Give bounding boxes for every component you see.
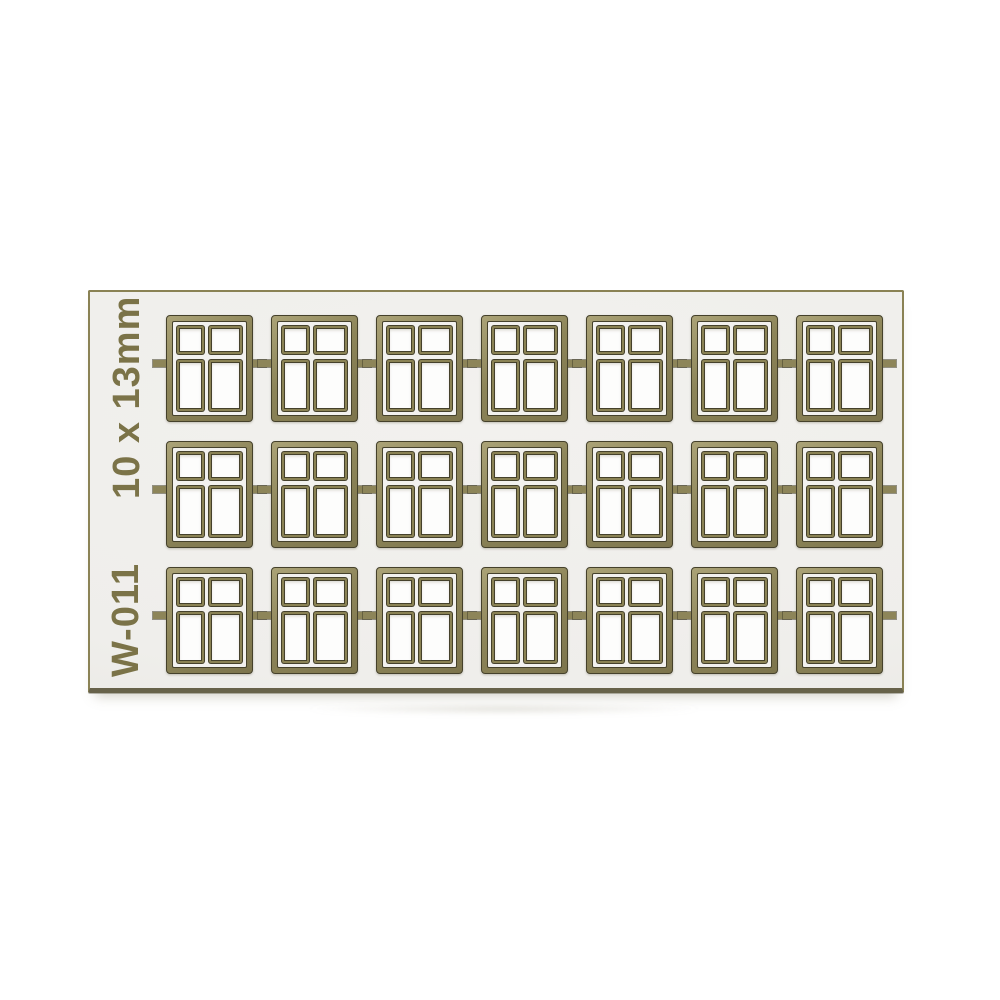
window-part xyxy=(376,315,463,422)
pane-bottom-left xyxy=(177,612,204,663)
pane-top-right xyxy=(839,452,872,480)
window-inner-frame xyxy=(487,447,562,542)
window-part xyxy=(691,315,778,422)
pane-top-right xyxy=(524,452,557,480)
window-part xyxy=(586,441,673,548)
pane-top-left xyxy=(807,326,834,354)
product-code-label: W-011 xyxy=(106,553,146,687)
window-part xyxy=(586,567,673,674)
window-part xyxy=(796,315,883,422)
pane-bottom-left xyxy=(387,612,414,663)
window-inner-frame xyxy=(277,447,352,542)
sprue-tab-right xyxy=(883,486,896,493)
window-inner-frame xyxy=(802,321,877,416)
window-inner-frame xyxy=(382,321,457,416)
pane-top-left xyxy=(492,452,519,480)
window-part xyxy=(376,567,463,674)
sprue-tab-left xyxy=(153,612,166,619)
window-inner-frame xyxy=(172,447,247,542)
pane-top-left xyxy=(282,326,309,354)
sprue-tab-left xyxy=(678,360,691,367)
pane-top-left xyxy=(177,452,204,480)
pane-top-left xyxy=(387,326,414,354)
size-label: 10 x 13mm xyxy=(107,301,147,499)
sprue-tab-left xyxy=(363,360,376,367)
pane-top-right xyxy=(314,326,347,354)
sprue-tab-right xyxy=(883,360,896,367)
window-part xyxy=(166,315,253,422)
window-part xyxy=(796,567,883,674)
pane-bottom-left xyxy=(597,360,624,411)
window-inner-frame xyxy=(592,573,667,668)
pane-top-right xyxy=(419,578,452,606)
sprue-tab-left xyxy=(573,486,586,493)
window-inner-frame xyxy=(697,447,772,542)
sprue-tab-left xyxy=(153,486,166,493)
window-part xyxy=(166,567,253,674)
sprue-tab-left xyxy=(258,360,271,367)
pane-bottom-right xyxy=(734,612,767,663)
pane-top-right xyxy=(419,326,452,354)
sprue-tab-right xyxy=(883,612,896,619)
window-part xyxy=(481,315,568,422)
pane-bottom-left xyxy=(702,486,729,537)
sprue-tab-left xyxy=(783,486,796,493)
pane-bottom-left xyxy=(387,360,414,411)
pane-bottom-right xyxy=(524,360,557,411)
pane-bottom-right xyxy=(524,612,557,663)
window-inner-frame xyxy=(592,321,667,416)
pane-top-right xyxy=(419,452,452,480)
pane-top-right xyxy=(314,452,347,480)
window-inner-frame xyxy=(487,321,562,416)
pane-bottom-right xyxy=(209,486,242,537)
sprue-tab-left xyxy=(468,486,481,493)
pane-bottom-right xyxy=(839,486,872,537)
pane-bottom-right xyxy=(314,486,347,537)
pane-top-left xyxy=(807,452,834,480)
pane-top-left xyxy=(177,578,204,606)
window-inner-frame xyxy=(382,573,457,668)
pane-bottom-right xyxy=(419,612,452,663)
window-inner-frame xyxy=(277,321,352,416)
pane-bottom-right xyxy=(419,360,452,411)
sprue-tab-left xyxy=(573,360,586,367)
pane-top-left xyxy=(492,326,519,354)
sprue-tab-left xyxy=(258,612,271,619)
pane-bottom-left xyxy=(282,612,309,663)
window-inner-frame xyxy=(802,447,877,542)
window-inner-frame xyxy=(697,321,772,416)
sprue-tab-left xyxy=(363,612,376,619)
pane-top-right xyxy=(524,326,557,354)
pane-bottom-right xyxy=(419,486,452,537)
pane-top-right xyxy=(209,452,242,480)
pane-top-right xyxy=(629,578,662,606)
pane-bottom-right xyxy=(629,612,662,663)
moulding-sheet: 10 x 13mm W-011 xyxy=(88,290,904,693)
pane-top-right xyxy=(629,326,662,354)
sprue-tab-left xyxy=(468,360,481,367)
pane-top-left xyxy=(387,452,414,480)
pane-top-right xyxy=(734,452,767,480)
pane-bottom-left xyxy=(702,360,729,411)
pane-top-right xyxy=(839,326,872,354)
window-part xyxy=(271,315,358,422)
window-part xyxy=(691,567,778,674)
pane-top-left xyxy=(807,578,834,606)
window-part xyxy=(166,441,253,548)
pane-bottom-left xyxy=(387,486,414,537)
pane-bottom-left xyxy=(492,612,519,663)
pane-bottom-right xyxy=(734,360,767,411)
pane-top-left xyxy=(702,452,729,480)
pane-bottom-right xyxy=(839,612,872,663)
pane-top-right xyxy=(209,578,242,606)
pane-bottom-left xyxy=(807,486,834,537)
pane-bottom-right xyxy=(209,360,242,411)
pane-bottom-right xyxy=(839,360,872,411)
pane-top-left xyxy=(597,578,624,606)
pane-top-right xyxy=(629,452,662,480)
sprue-tab-left xyxy=(783,360,796,367)
sprue-tab-left xyxy=(678,486,691,493)
window-part xyxy=(481,567,568,674)
pane-bottom-left xyxy=(702,612,729,663)
window-part xyxy=(271,567,358,674)
pane-bottom-right xyxy=(314,360,347,411)
pane-bottom-left xyxy=(177,360,204,411)
pane-bottom-right xyxy=(314,612,347,663)
sprue-tab-left xyxy=(468,612,481,619)
pane-bottom-left xyxy=(597,486,624,537)
sprue-tab-left xyxy=(678,612,691,619)
pane-bottom-right xyxy=(209,612,242,663)
window-part xyxy=(481,441,568,548)
pane-bottom-left xyxy=(282,486,309,537)
pane-top-left xyxy=(492,578,519,606)
window-grid xyxy=(166,315,883,674)
window-inner-frame xyxy=(172,573,247,668)
window-inner-frame xyxy=(172,321,247,416)
pane-bottom-left xyxy=(807,360,834,411)
pane-top-right xyxy=(734,326,767,354)
pane-bottom-left xyxy=(177,486,204,537)
pane-bottom-left xyxy=(597,612,624,663)
pane-bottom-left xyxy=(807,612,834,663)
sprue-tab-left xyxy=(783,612,796,619)
pane-bottom-left xyxy=(282,360,309,411)
pane-bottom-right xyxy=(629,486,662,537)
window-part xyxy=(796,441,883,548)
pane-top-left xyxy=(387,578,414,606)
pane-bottom-right xyxy=(524,486,557,537)
pane-top-right xyxy=(839,578,872,606)
pane-top-right xyxy=(209,326,242,354)
pane-bottom-right xyxy=(629,360,662,411)
window-part xyxy=(691,441,778,548)
pane-top-left xyxy=(282,578,309,606)
pane-top-left xyxy=(597,452,624,480)
sprue-tab-left xyxy=(363,486,376,493)
pane-top-left xyxy=(702,578,729,606)
pane-top-left xyxy=(702,326,729,354)
window-inner-frame xyxy=(802,573,877,668)
window-inner-frame xyxy=(697,573,772,668)
window-part xyxy=(586,315,673,422)
pane-top-right xyxy=(314,578,347,606)
sprue-tab-left xyxy=(258,486,271,493)
window-inner-frame xyxy=(592,447,667,542)
window-part xyxy=(376,441,463,548)
pane-top-right xyxy=(524,578,557,606)
window-part xyxy=(271,441,358,548)
pane-top-left xyxy=(177,326,204,354)
product-photo: 10 x 13mm W-011 xyxy=(0,0,1000,1000)
window-inner-frame xyxy=(487,573,562,668)
pane-top-right xyxy=(734,578,767,606)
window-inner-frame xyxy=(277,573,352,668)
pane-bottom-left xyxy=(492,360,519,411)
pane-bottom-left xyxy=(492,486,519,537)
sprue-tab-left xyxy=(153,360,166,367)
sprue-tab-left xyxy=(573,612,586,619)
window-inner-frame xyxy=(382,447,457,542)
pane-top-left xyxy=(282,452,309,480)
pane-top-left xyxy=(597,326,624,354)
pane-bottom-right xyxy=(734,486,767,537)
